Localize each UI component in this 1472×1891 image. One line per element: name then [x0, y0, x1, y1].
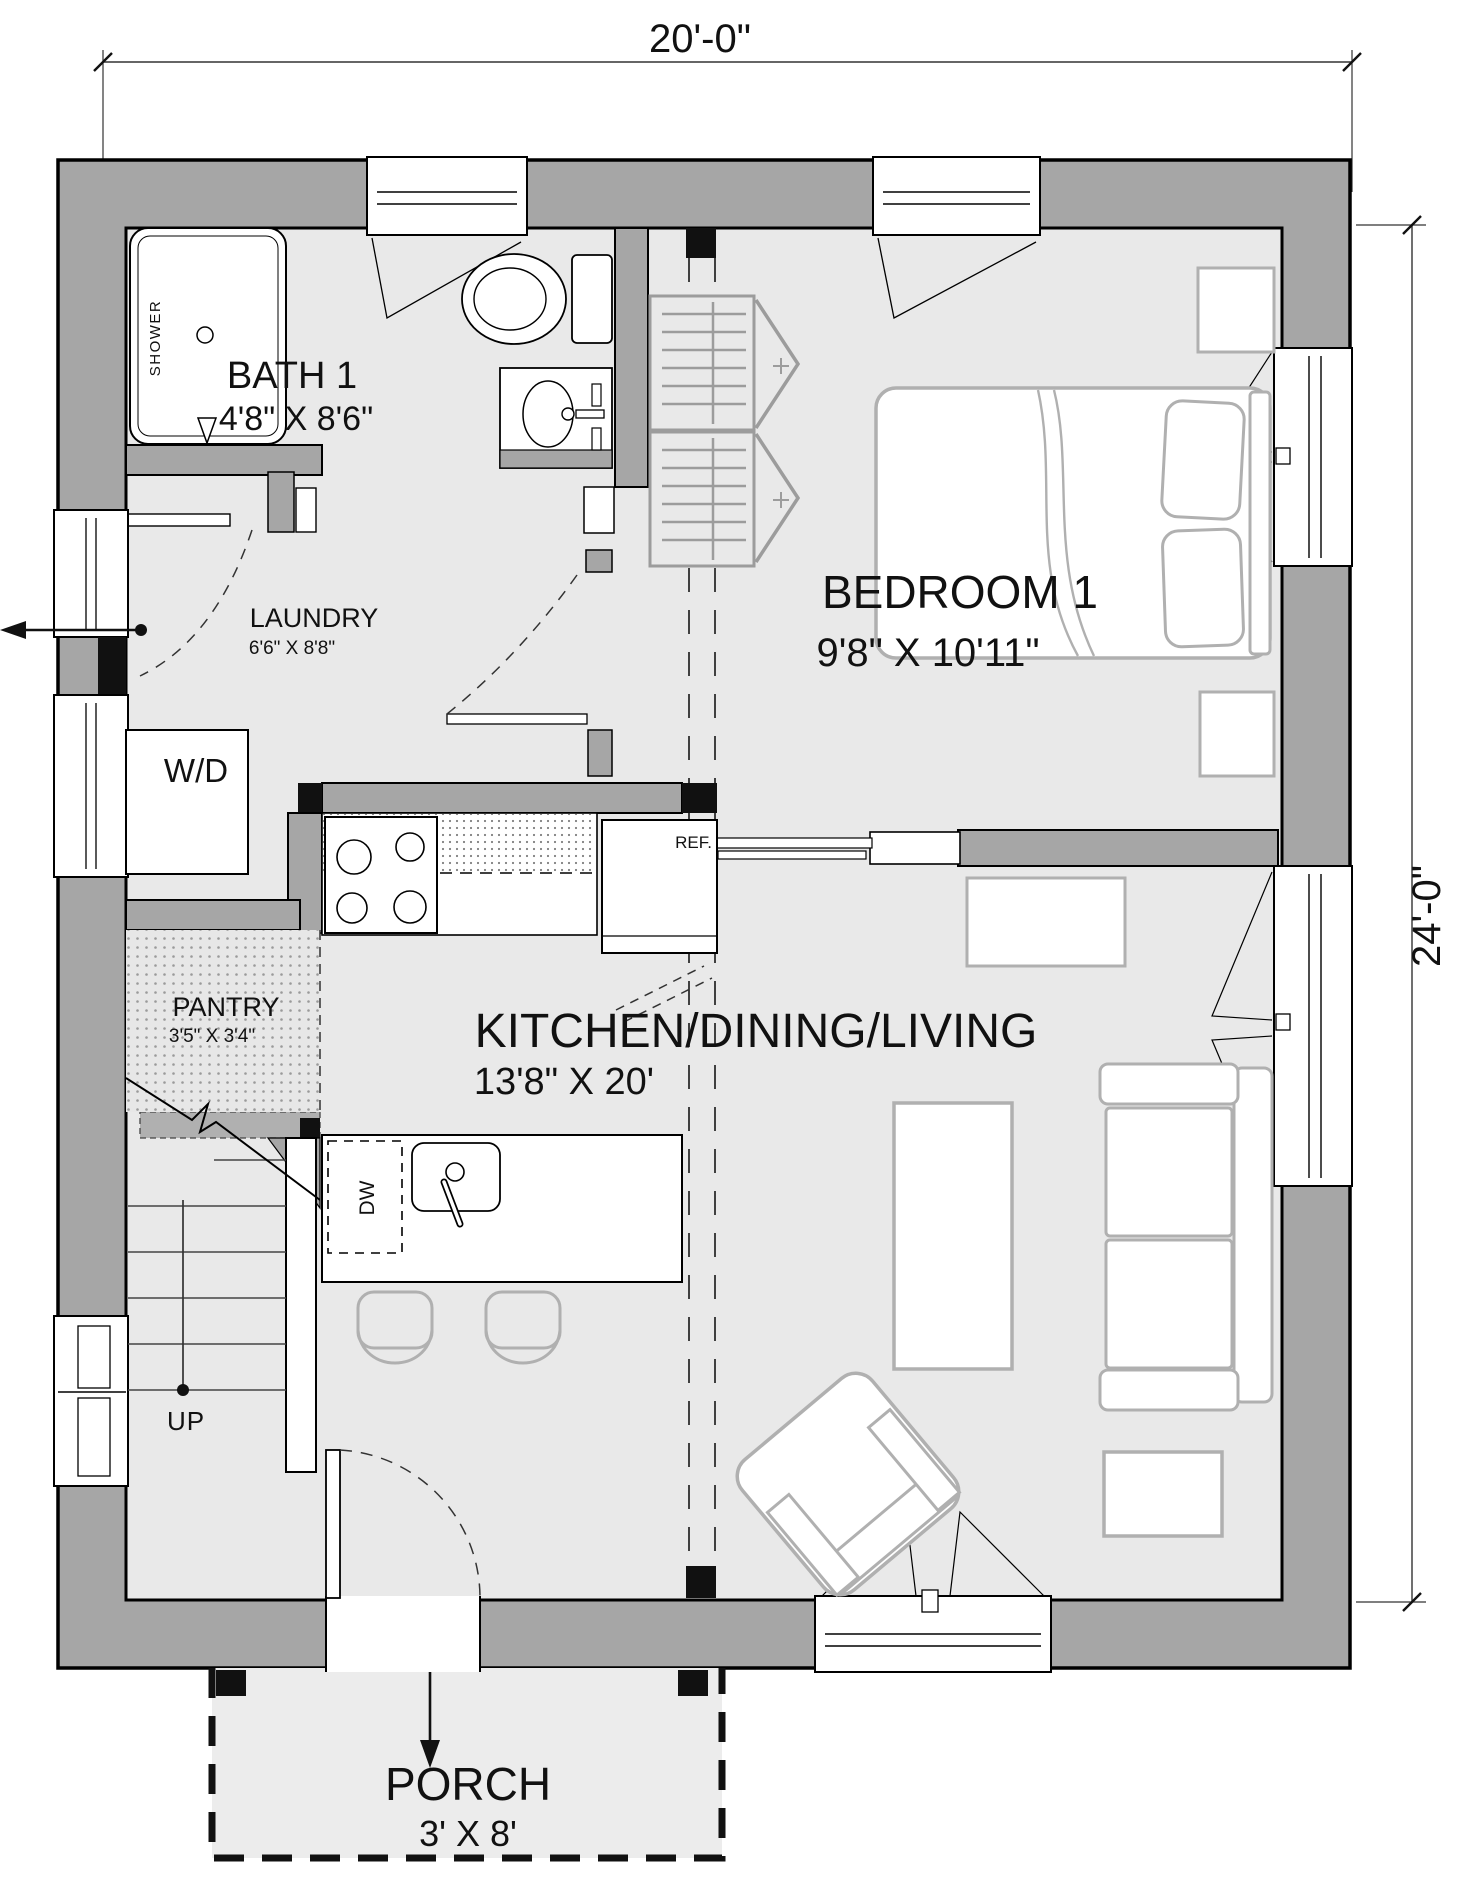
stool	[486, 1292, 560, 1348]
porch-size: 3' X 8'	[419, 1813, 517, 1854]
wall-stub-hall	[588, 730, 612, 776]
vent-arrow-head	[0, 621, 26, 639]
sofa-back	[1234, 1068, 1272, 1402]
post-bottom	[686, 1566, 716, 1598]
laundry-door-casing	[296, 488, 316, 532]
wall-kitchen-half	[322, 783, 682, 813]
burner	[337, 840, 371, 874]
dishwasher-label: DW	[356, 1180, 379, 1215]
wall-laundry-pantry	[126, 900, 300, 930]
stair-start-dot	[177, 1384, 189, 1396]
bath-door-casing-right	[584, 487, 614, 533]
burner	[394, 891, 426, 923]
kitchen-island: DW	[322, 1135, 682, 1282]
window-frame	[54, 695, 128, 877]
sink-faucet	[446, 1163, 464, 1181]
shower-label: SHOWER	[147, 300, 164, 377]
vanity-edge	[500, 450, 612, 468]
window-frame	[367, 157, 527, 235]
stool	[358, 1292, 432, 1348]
wall-bedroom-partial	[958, 830, 1278, 866]
washer-dryer-label: W/D	[164, 752, 228, 789]
kitchen-size: 13'8" X 20'	[474, 1061, 654, 1103]
kitchen-name: KITCHEN/DINING/LIVING	[475, 1005, 1038, 1058]
bath-vanity	[500, 368, 612, 468]
vanity-fixture	[592, 428, 601, 450]
sofa-cushion	[1106, 1240, 1232, 1368]
stair-side-wall	[286, 1138, 316, 1472]
dimension-top-label: 20'-0"	[649, 17, 751, 61]
refrigerator: REF.	[602, 820, 717, 953]
bed-pillow	[1161, 400, 1245, 520]
side-table	[1104, 1452, 1222, 1536]
bath-pocket-door	[447, 714, 587, 724]
bedroom-name: BEDROOM 1	[822, 566, 1098, 618]
bedroom-size: 9'8" X 10'11"	[816, 631, 1039, 675]
bath-size: 4'8" X 8'6"	[219, 400, 373, 438]
pantry-name: PANTRY	[172, 992, 279, 1022]
stairs-up-label: UP	[167, 1406, 205, 1436]
bedroom-opening-casing	[870, 832, 960, 864]
laundry-pocket-door	[118, 514, 230, 526]
window-latch	[922, 1590, 938, 1612]
sofa	[1100, 1064, 1272, 1410]
door-leaf	[326, 1450, 340, 1598]
bed-headboard	[1250, 392, 1270, 654]
wall-under-stair	[140, 1112, 320, 1138]
wall-stub-bath	[586, 550, 612, 572]
bath-name: BATH 1	[227, 355, 357, 397]
sofa-arm	[1100, 1370, 1238, 1410]
window-mullion-post	[98, 637, 126, 695]
nightstand	[1200, 692, 1274, 776]
refrigerator-label: REF.	[675, 833, 712, 852]
post-half-wall-left	[298, 783, 322, 813]
window-left-stair	[54, 1316, 128, 1486]
dimension-right: 24'-0"	[1356, 216, 1449, 1611]
wall-bath-laundry-step	[268, 472, 294, 532]
post-top	[686, 228, 716, 258]
coffee-table	[894, 1103, 1012, 1369]
wall-bath-closet	[615, 228, 648, 487]
burner	[337, 893, 367, 923]
laundry-name: LAUNDRY	[250, 603, 379, 633]
wall-bath-laundry	[126, 445, 322, 475]
window-latch	[1276, 448, 1290, 464]
post-half-wall-right	[682, 783, 717, 813]
window-frame	[54, 510, 128, 637]
sofa-arm	[1100, 1064, 1238, 1104]
window-frame	[873, 157, 1040, 235]
pantry-size: 3'5" X 3'4"	[169, 1026, 255, 1047]
bedroom-sliding-door	[712, 838, 872, 848]
floor-plan-page: 20'-0" 24'-0"	[0, 0, 1472, 1891]
dresser	[967, 878, 1125, 966]
toilet-tank	[572, 255, 612, 343]
laundry-area: W/D	[126, 730, 248, 874]
laundry-size: 6'6" X 8'8"	[249, 638, 335, 659]
post-pantry	[300, 1118, 320, 1140]
porch-post	[678, 1670, 708, 1696]
window-latch	[1276, 1014, 1290, 1030]
window-frame	[54, 1316, 128, 1486]
vanity-faucet-handle	[576, 410, 604, 418]
bedroom-sliding-door-track	[718, 851, 866, 859]
toilet	[462, 254, 612, 344]
burner	[396, 833, 424, 861]
porch-post	[216, 1670, 246, 1696]
door-opening	[326, 1596, 480, 1672]
vanity-fixture	[592, 384, 601, 406]
porch-name: PORCH	[385, 1758, 551, 1810]
floor-plan-drawing: 20'-0" 24'-0"	[0, 0, 1472, 1891]
sofa-cushion	[1106, 1108, 1232, 1236]
dimension-right-label: 24'-0"	[1405, 865, 1449, 967]
bed-pillow	[1162, 529, 1244, 648]
vanity-faucet	[562, 408, 574, 420]
nightstand	[1198, 268, 1274, 352]
